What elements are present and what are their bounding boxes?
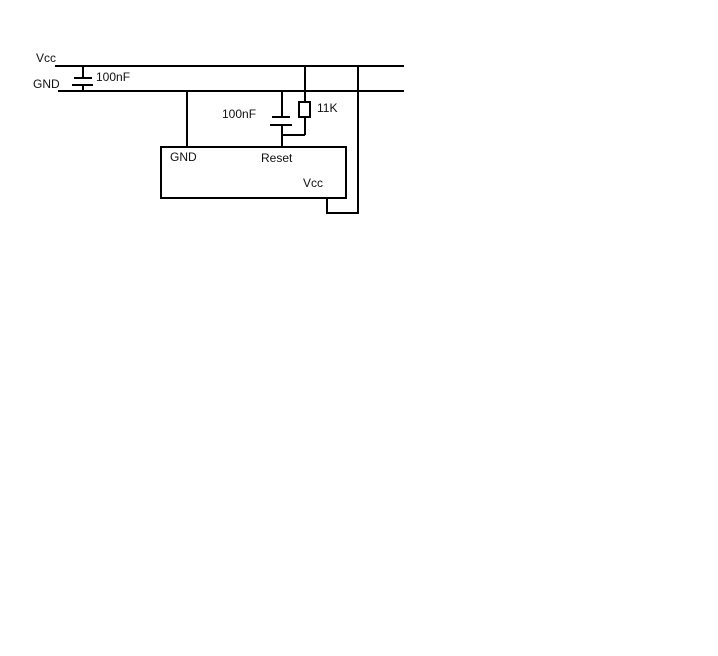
decoupling-capacitor: 100nF: [72, 66, 130, 91]
gnd-rail-label: GND: [33, 77, 60, 91]
ic-pin-vcc-label: Vcc: [303, 176, 323, 190]
ic-pin-gnd-label: GND: [170, 150, 197, 164]
cap2-value-label: 100nF: [222, 107, 256, 121]
ic-block: GND Reset Vcc: [161, 147, 346, 198]
vcc-rail-label: Vcc: [36, 51, 56, 65]
resistor-value-label: 11K: [317, 101, 337, 115]
cap1-value-label: 100nF: [96, 70, 130, 84]
schematic-page: Vcc GND 100nF 100nF 11K: [0, 0, 718, 656]
resistor-body: [299, 102, 310, 117]
reset-capacitor: 100nF: [222, 91, 292, 147]
pullup-resistor: 11K: [299, 66, 337, 135]
ic-vcc-wire: [327, 66, 358, 213]
ic-pin-reset-label: Reset: [261, 151, 293, 165]
schematic-canvas: Vcc GND 100nF 100nF 11K: [0, 0, 718, 656]
